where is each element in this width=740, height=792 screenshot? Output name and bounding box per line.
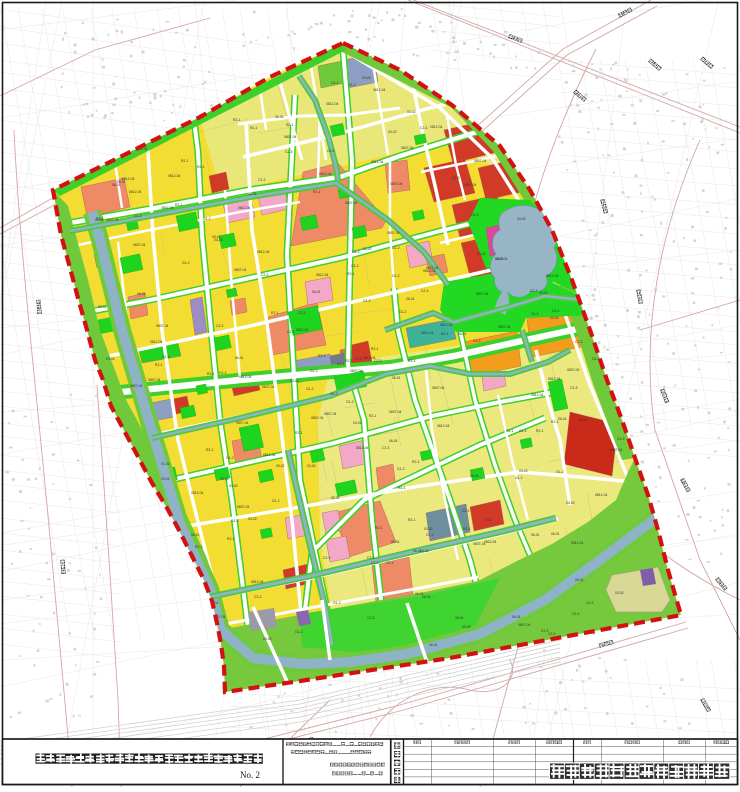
svg-text:03-02: 03-02 (519, 469, 528, 473)
svg-text:0807-04: 0807-04 (156, 324, 169, 328)
svg-text:G1-2: G1-2 (348, 83, 356, 87)
svg-text:03-02: 03-02 (362, 76, 371, 80)
svg-text:0812-04: 0812-04 (484, 540, 497, 544)
svg-text:0812-04: 0812-04 (191, 491, 204, 495)
svg-text:0812-04: 0812-04 (356, 446, 369, 450)
svg-text:0812-04: 0812-04 (168, 174, 181, 178)
svg-text:06-01: 06-01 (117, 180, 126, 184)
svg-text:No. 2: No. 2 (240, 770, 260, 780)
svg-text:C2-3: C2-3 (216, 324, 223, 328)
svg-text:03-02: 03-02 (353, 421, 362, 425)
svg-text:03-02: 03-02 (248, 517, 257, 521)
svg-text:G1-2: G1-2 (392, 246, 400, 250)
svg-text:06-01: 06-01 (392, 376, 401, 380)
svg-text:0807-04: 0807-04 (311, 416, 324, 420)
svg-text:06-01: 06-01 (391, 540, 400, 544)
svg-text:0812-04: 0812-04 (316, 273, 329, 277)
svg-text:C2-3: C2-3 (421, 289, 428, 293)
svg-text:0812-04: 0812-04 (571, 541, 584, 545)
svg-text:0812-04: 0812-04 (440, 323, 453, 327)
svg-text:0807-04: 0807-04 (234, 268, 247, 272)
svg-text:03-02: 03-02 (161, 462, 170, 466)
svg-text:0807-04: 0807-04 (133, 243, 146, 247)
svg-text:06-01: 06-01 (275, 115, 284, 119)
svg-text:0812-04: 0812-04 (296, 328, 309, 332)
svg-text:0812-04: 0812-04 (363, 356, 376, 360)
svg-text:R2-1: R2-1 (155, 363, 162, 367)
svg-text:C2-3: C2-3 (371, 561, 378, 565)
svg-text:0812-04: 0812-04 (251, 580, 264, 584)
svg-text:G1-2: G1-2 (363, 299, 371, 303)
svg-text:0807-04: 0807-04 (106, 218, 119, 222)
svg-text:03-02: 03-02 (424, 527, 433, 531)
svg-text:R2-1: R2-1 (375, 526, 382, 530)
svg-text:03-02: 03-02 (95, 218, 104, 222)
svg-text:0807-04: 0807-04 (518, 623, 531, 627)
svg-text:G1-2: G1-2 (295, 630, 303, 634)
svg-text:03-02: 03-02 (98, 305, 107, 309)
svg-text:C2-3: C2-3 (367, 556, 374, 560)
svg-text:R2-1: R2-1 (175, 203, 182, 207)
svg-text:R2-1: R2-1 (313, 190, 320, 194)
svg-text:G1-2: G1-2 (351, 264, 359, 268)
svg-text:C2-3: C2-3 (530, 289, 537, 293)
svg-text:C2-3: C2-3 (462, 509, 469, 513)
svg-text:0807-04: 0807-04 (262, 385, 275, 389)
svg-text:C2-3: C2-3 (575, 340, 582, 344)
svg-text:R2-1: R2-1 (227, 537, 234, 541)
svg-text:G1-2: G1-2 (352, 250, 360, 254)
svg-text:0807-04: 0807-04 (610, 448, 623, 452)
svg-text:G1-2: G1-2 (330, 392, 338, 396)
svg-text:C2-3: C2-3 (570, 386, 577, 390)
svg-text:G1-2: G1-2 (515, 476, 523, 480)
svg-text:C2-3: C2-3 (386, 561, 393, 565)
svg-text:0807-04: 0807-04 (345, 201, 358, 205)
svg-text:0812-04: 0812-04 (326, 102, 339, 106)
svg-text:06-01: 06-01 (551, 532, 560, 536)
svg-text:0807-04: 0807-04 (426, 266, 439, 270)
svg-text:G1-2: G1-2 (552, 309, 560, 313)
svg-text:G1-2: G1-2 (272, 499, 280, 503)
svg-text:G1-2: G1-2 (556, 470, 564, 474)
svg-text:0812-04: 0812-04 (495, 257, 508, 261)
svg-text:R2-1: R2-1 (233, 118, 240, 122)
svg-text:0807-04: 0807-04 (130, 384, 143, 388)
svg-text:C2-3: C2-3 (337, 362, 344, 366)
svg-text:03-02: 03-02 (161, 477, 170, 481)
svg-text:G1-2: G1-2 (219, 371, 227, 375)
svg-text:03-02: 03-02 (566, 501, 575, 505)
svg-text:G1-2: G1-2 (203, 217, 211, 221)
svg-text:03-02: 03-02 (517, 217, 526, 221)
svg-text:C2-3: C2-3 (382, 446, 389, 450)
svg-text:R2-1: R2-1 (295, 431, 302, 435)
svg-text:C2-3: C2-3 (285, 150, 292, 154)
svg-text:G1-2: G1-2 (485, 518, 493, 522)
svg-text:06-01: 06-01 (558, 417, 567, 421)
svg-text:G1-2: G1-2 (617, 437, 625, 441)
svg-text:C2-3: C2-3 (572, 612, 579, 616)
svg-text:R2-1: R2-1 (369, 414, 376, 418)
svg-text:G1-2: G1-2 (473, 339, 481, 343)
svg-text:R2-1: R2-1 (250, 126, 257, 130)
svg-text:G1-2: G1-2 (346, 400, 354, 404)
svg-text:0807-04: 0807-04 (567, 368, 580, 372)
svg-text:R2-1: R2-1 (371, 347, 378, 351)
svg-text:R2-1: R2-1 (398, 486, 405, 490)
svg-text:R2-1: R2-1 (206, 448, 213, 452)
svg-text:0807-04: 0807-04 (148, 378, 161, 382)
svg-text:G1-2: G1-2 (231, 519, 239, 523)
svg-text:06-01: 06-01 (312, 290, 321, 294)
svg-text:06-01: 06-01 (389, 439, 398, 443)
svg-text:G1-2: G1-2 (392, 274, 400, 278)
svg-text:G1-2: G1-2 (426, 533, 434, 537)
svg-text:0812-04: 0812-04 (371, 160, 384, 164)
svg-text:R2-1: R2-1 (408, 518, 415, 522)
svg-text:C2-3: C2-3 (354, 357, 361, 361)
svg-text:0807-04: 0807-04 (474, 159, 487, 163)
svg-text:03-02: 03-02 (263, 637, 272, 641)
svg-text:R2-1: R2-1 (286, 123, 293, 127)
svg-text:G1-2: G1-2 (397, 467, 405, 471)
svg-text:06-01: 06-01 (531, 533, 540, 537)
svg-text:03-02: 03-02 (106, 357, 115, 361)
svg-text:C2-3: C2-3 (258, 178, 265, 182)
svg-text:0807-04: 0807-04 (161, 206, 174, 210)
svg-text:03-02: 03-02 (579, 418, 588, 422)
svg-text:C2-3: C2-3 (261, 273, 268, 277)
svg-text:03-02: 03-02 (220, 477, 229, 481)
svg-text:C2-3: C2-3 (541, 629, 548, 633)
svg-text:R2-1: R2-1 (506, 429, 513, 433)
svg-text:0807-04: 0807-04 (236, 421, 249, 425)
svg-text:0812-04: 0812-04 (437, 424, 450, 428)
svg-text:0812-04: 0812-04 (150, 340, 163, 344)
svg-text:R2-1: R2-1 (207, 372, 214, 376)
svg-text:R2-1: R2-1 (536, 429, 543, 433)
svg-text:0807-04: 0807-04 (284, 135, 297, 139)
svg-text:G1-2: G1-2 (310, 369, 318, 373)
svg-text:C2-3: C2-3 (586, 601, 593, 605)
svg-text:0812-04: 0812-04 (257, 250, 270, 254)
svg-text:06-01: 06-01 (458, 332, 467, 336)
svg-text:R2-1: R2-1 (441, 332, 448, 336)
svg-text:06-01: 06-01 (191, 533, 200, 537)
svg-text:03-02: 03-02 (276, 464, 285, 468)
svg-text:0807-04: 0807-04 (389, 410, 402, 414)
svg-text:0807-04: 0807-04 (464, 183, 477, 187)
svg-text:G1-2: G1-2 (162, 355, 170, 359)
svg-text:0812-04: 0812-04 (239, 375, 252, 379)
svg-text:03-02: 03-02 (212, 235, 221, 239)
svg-text:0812-04: 0812-04 (421, 331, 434, 335)
svg-text:0807-04: 0807-04 (498, 325, 511, 329)
svg-text:06-01: 06-01 (575, 578, 584, 582)
svg-text:0812-04: 0812-04 (373, 88, 386, 92)
svg-text:0812-04: 0812-04 (531, 393, 544, 397)
svg-text:03-02: 03-02 (615, 591, 624, 595)
svg-text:G1-2: G1-2 (182, 261, 190, 265)
svg-text:G1-2: G1-2 (226, 456, 234, 460)
svg-text:03-02: 03-02 (462, 625, 471, 629)
svg-text:06-01: 06-01 (455, 616, 464, 620)
svg-text:06-01: 06-01 (470, 474, 479, 478)
svg-text:C2-3: C2-3 (287, 330, 294, 334)
svg-text:0807-04: 0807-04 (432, 386, 445, 390)
svg-text:R2-1: R2-1 (408, 359, 415, 363)
svg-text:G1-2: G1-2 (519, 429, 527, 433)
svg-text:G1-2: G1-2 (306, 387, 314, 391)
svg-text:0812-04: 0812-04 (319, 172, 332, 176)
svg-text:R2-1: R2-1 (195, 545, 202, 549)
svg-text:03-02: 03-02 (550, 316, 559, 320)
svg-text:03-02: 03-02 (388, 130, 397, 134)
svg-text:06-01: 06-01 (137, 292, 146, 296)
svg-text:C2-3: C2-3 (367, 616, 374, 620)
svg-text:R2-1: R2-1 (463, 527, 470, 531)
svg-text:06-01: 06-01 (406, 297, 415, 301)
svg-text:03-02: 03-02 (290, 379, 299, 383)
svg-text:R2-1: R2-1 (197, 165, 204, 169)
svg-text:C2-3: C2-3 (254, 595, 261, 599)
svg-text:0807-04: 0807-04 (476, 292, 489, 296)
svg-text:R2-1: R2-1 (347, 272, 354, 276)
svg-text:R2-1: R2-1 (181, 159, 188, 163)
svg-text:C2-3: C2-3 (452, 176, 459, 180)
svg-text:03-02: 03-02 (229, 484, 238, 488)
svg-text:03-02: 03-02 (477, 252, 486, 256)
svg-text:R2-1: R2-1 (318, 354, 325, 358)
svg-text:C2-3: C2-3 (327, 149, 334, 153)
svg-text:0812-04: 0812-04 (546, 274, 559, 278)
svg-text:0812-04: 0812-04 (430, 125, 443, 129)
svg-text:G1-2: G1-2 (331, 81, 339, 85)
svg-text:06-01: 06-01 (429, 643, 438, 647)
svg-text:0807-04: 0807-04 (350, 369, 363, 373)
svg-text:C2-3: C2-3 (298, 311, 305, 315)
svg-text:C2-3: C2-3 (420, 126, 427, 130)
svg-text:R2-1: R2-1 (551, 420, 558, 424)
svg-text:03-02: 03-02 (307, 464, 316, 468)
svg-text:0812-04: 0812-04 (263, 453, 276, 457)
svg-text:G1-2: G1-2 (531, 312, 539, 316)
svg-text:G1-2: G1-2 (399, 310, 407, 314)
svg-text:R2-1: R2-1 (271, 311, 278, 315)
svg-text:0812-04: 0812-04 (129, 190, 142, 194)
svg-text:03-02: 03-02 (407, 110, 416, 114)
svg-text:G1-2: G1-2 (471, 213, 479, 217)
svg-text:C2-3: C2-3 (323, 556, 330, 560)
svg-text:0807-04: 0807-04 (324, 412, 337, 416)
svg-text:R2-1: R2-1 (412, 460, 419, 464)
svg-text:06-01: 06-01 (331, 496, 340, 500)
svg-text:C2-3: C2-3 (548, 632, 555, 636)
svg-text:06-01: 06-01 (248, 192, 257, 196)
svg-text:G1-2: G1-2 (333, 601, 341, 605)
svg-text:0812-04: 0812-04 (238, 206, 251, 210)
svg-text:03-02: 03-02 (539, 291, 548, 295)
svg-text:06-01: 06-01 (415, 592, 424, 596)
svg-text:G1-2: G1-2 (134, 214, 142, 218)
svg-text:0812-04: 0812-04 (595, 493, 608, 497)
svg-text:0807-04: 0807-04 (390, 182, 403, 186)
svg-text:0807-04: 0807-04 (387, 231, 400, 235)
svg-text:03-02: 03-02 (363, 247, 372, 251)
svg-text:0807-04: 0807-04 (401, 146, 414, 150)
svg-text:06-01: 06-01 (413, 549, 422, 553)
svg-text:0807-04: 0807-04 (237, 505, 250, 509)
svg-text:0812-04: 0812-04 (548, 377, 561, 381)
svg-text:06-01: 06-01 (512, 615, 521, 619)
svg-text:R2-1: R2-1 (345, 359, 352, 363)
svg-text:06-01: 06-01 (235, 356, 244, 360)
